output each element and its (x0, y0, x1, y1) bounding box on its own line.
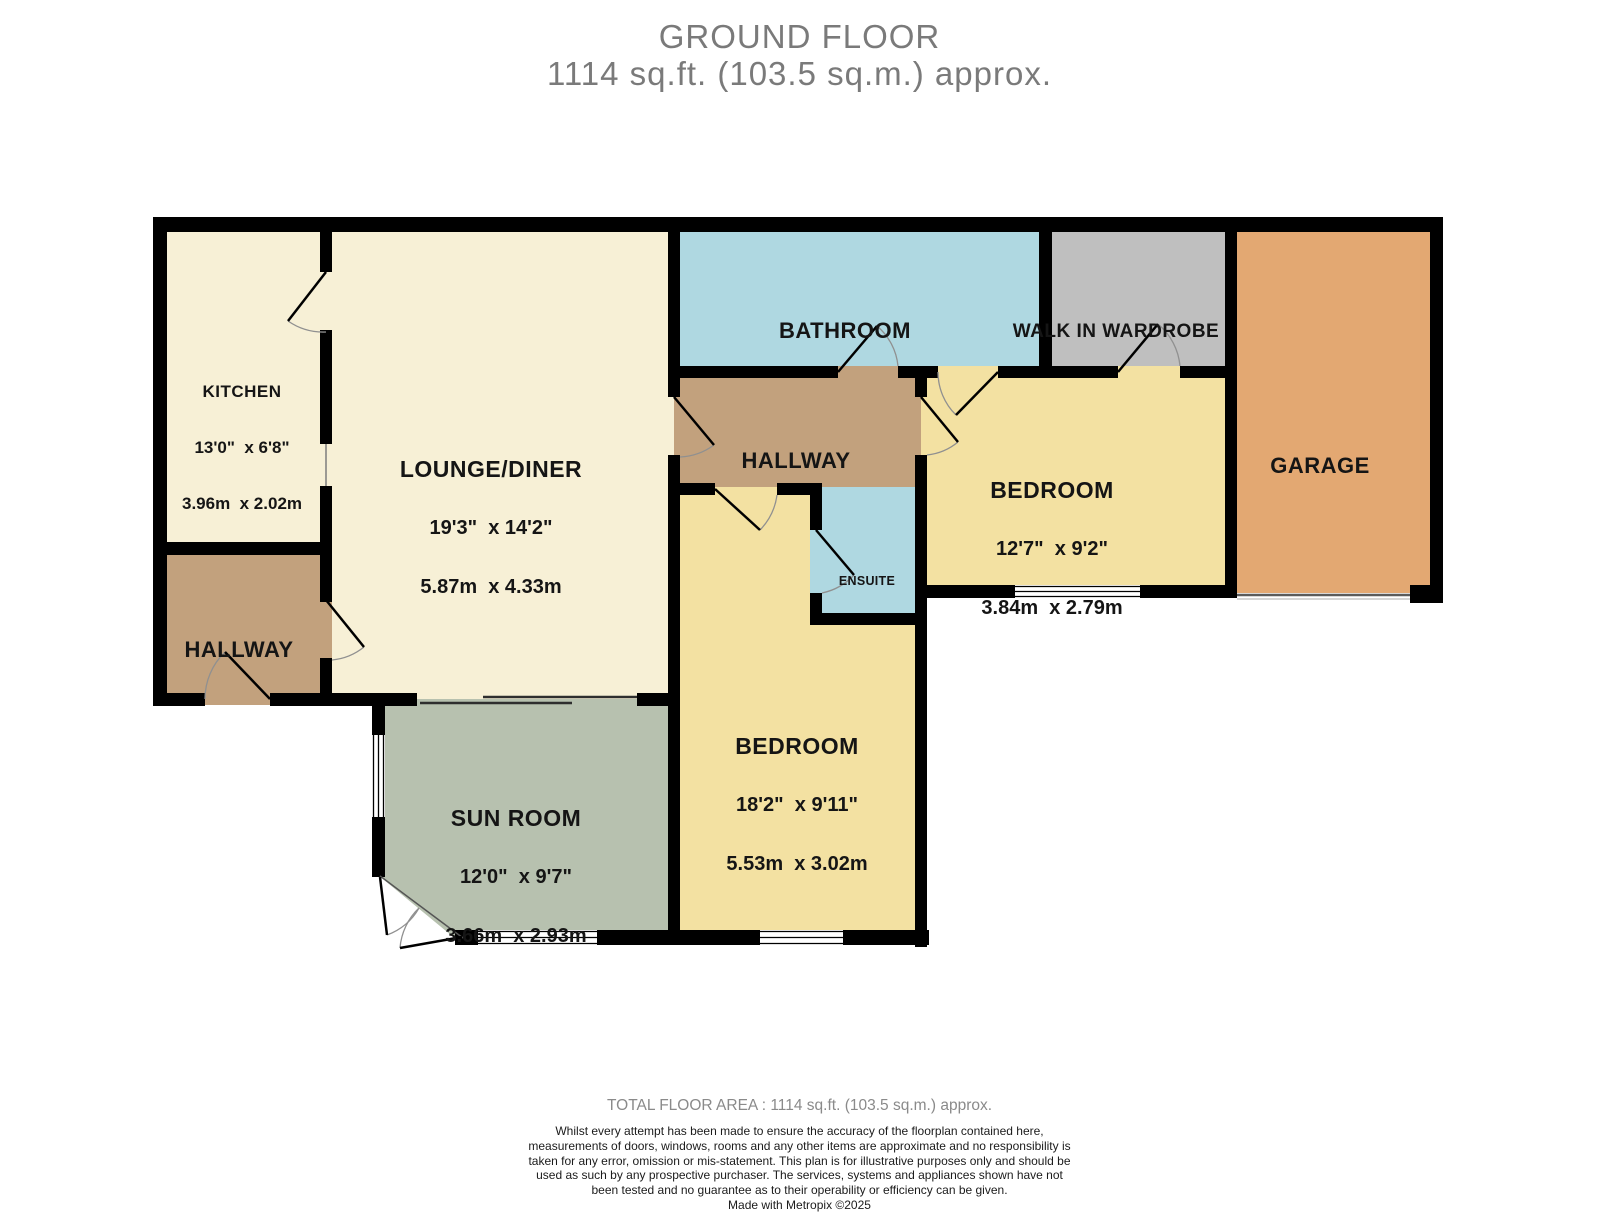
sun-room-label: SUN ROOM 12'0" x 9'7" 3.66m x 2.93m (445, 770, 586, 984)
ensuite-name: ENSUITE (839, 574, 895, 588)
lounge-name: LOUNGE/DINER (400, 457, 582, 481)
footer: TOTAL FLOOR AREA : 1114 sq.ft. (103.5 sq… (0, 1096, 1599, 1213)
kitchen-dims-metric: 3.96m x 2.02m (182, 494, 302, 514)
wall-bottom-c (843, 930, 929, 945)
sunroom-left-window (372, 735, 385, 817)
lounge-dims-metric: 5.87m x 4.33m (400, 576, 582, 599)
disclaimer-text: Whilst every attempt has been made to en… (527, 1124, 1072, 1198)
wall-hallway-bedroom-a (915, 378, 927, 397)
wall-bottom-b (597, 930, 760, 945)
bedroom-bottom-window (760, 930, 843, 945)
bathroom-label: BATHROOM (779, 283, 911, 379)
lounge-dims-imperial: 19'3" x 14'2" (400, 517, 582, 540)
kitchen-dims-imperial: 13'0" x 6'8" (182, 438, 302, 458)
total-floor-area: TOTAL FLOOR AREA : 1114 sq.ft. (103.5 sq… (0, 1096, 1599, 1116)
hallway-left-label: HALLWAY (184, 602, 293, 698)
bedroom-bottom-dims-imperial: 18'2" x 9'11" (726, 794, 867, 817)
kitchen-name: KITCHEN (182, 382, 302, 402)
hallway-center-label: HALLWAY (741, 413, 850, 509)
wall-hallway-bedroom-b (915, 455, 927, 947)
garage-label: GARAGE (1270, 418, 1370, 514)
lounge-diner-label: LOUNGE/DINER 19'3" x 14'2" 5.87m x 4.33m (400, 421, 582, 635)
bedroom-bottom-name: BEDROOM (726, 734, 867, 758)
sunroom-dims-imperial: 12'0" x 9'7" (445, 866, 586, 889)
sunroom-dims-metric: 3.66m x 2.93m (445, 925, 586, 948)
metropix-credit: Made with Metropix ©2025 (0, 1198, 1599, 1213)
wall-sunroom-left-b (372, 817, 385, 877)
wall-sunroom-left-a (372, 699, 385, 735)
hallway-left-name: HALLWAY (184, 638, 293, 662)
bedroom-right-label: BEDROOM 12'7" x 9'2" 3.84m x 2.79m (981, 442, 1122, 656)
hallway-center-name: HALLWAY (741, 449, 850, 473)
wall-bedroom-right-bottom-b (1140, 585, 1237, 598)
wall-kitchen-right-a (320, 232, 332, 272)
wardrobe-name: WALK IN WARDROBE (1013, 320, 1219, 344)
floorplan-page: GROUND FLOOR 1114 sq.ft. (103.5 sq.m.) a… (0, 0, 1599, 1227)
bedroom-right-name: BEDROOM (981, 478, 1122, 502)
wall-exterior-top (153, 217, 1443, 232)
wall-kitchen-right-b (320, 330, 332, 444)
wall-garage-bottom-end (1410, 585, 1443, 603)
wall-hallway-center-bottom-a (674, 483, 715, 495)
wall-lounge-right-a (668, 232, 680, 397)
wall-wardrobe-garage (1225, 232, 1237, 598)
wall-exterior-left (153, 217, 167, 706)
sunroom-name: SUN ROOM (445, 806, 586, 830)
bedroom-bottom-dims-metric: 5.53m x 3.02m (726, 853, 867, 876)
wall-hallway-left-a (320, 555, 332, 602)
bedroom-right-dims-imperial: 12'7" x 9'2" (981, 538, 1122, 561)
kitchen-label: KITCHEN 13'0" x 6'8" 3.96m x 2.02m (182, 346, 302, 550)
wall-exterior-right (1430, 217, 1443, 603)
bedroom-right-dims-metric: 3.84m x 2.79m (981, 597, 1122, 620)
wall-bedroom-bottom-left (668, 705, 680, 945)
walk-in-wardrobe-label: WALK IN WARDROBE (1013, 284, 1219, 380)
garage-name: GARAGE (1270, 454, 1370, 478)
ensuite-label: ENSUITE (839, 538, 895, 624)
bedroom-bottom-label: BEDROOM 18'2" x 9'11" 5.53m x 3.02m (726, 698, 867, 912)
garage-floor (1232, 232, 1437, 593)
bathroom-name: BATHROOM (779, 319, 911, 343)
